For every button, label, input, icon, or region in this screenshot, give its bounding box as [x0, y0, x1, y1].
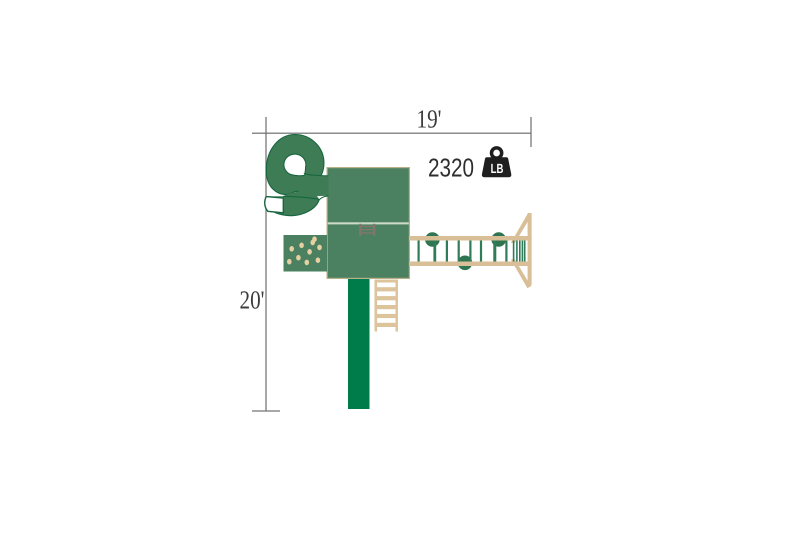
svg-text:19': 19': [417, 105, 442, 134]
svg-text:20': 20': [240, 286, 265, 315]
svg-text:LB: LB: [491, 161, 504, 176]
svg-text:2320: 2320: [428, 153, 474, 183]
